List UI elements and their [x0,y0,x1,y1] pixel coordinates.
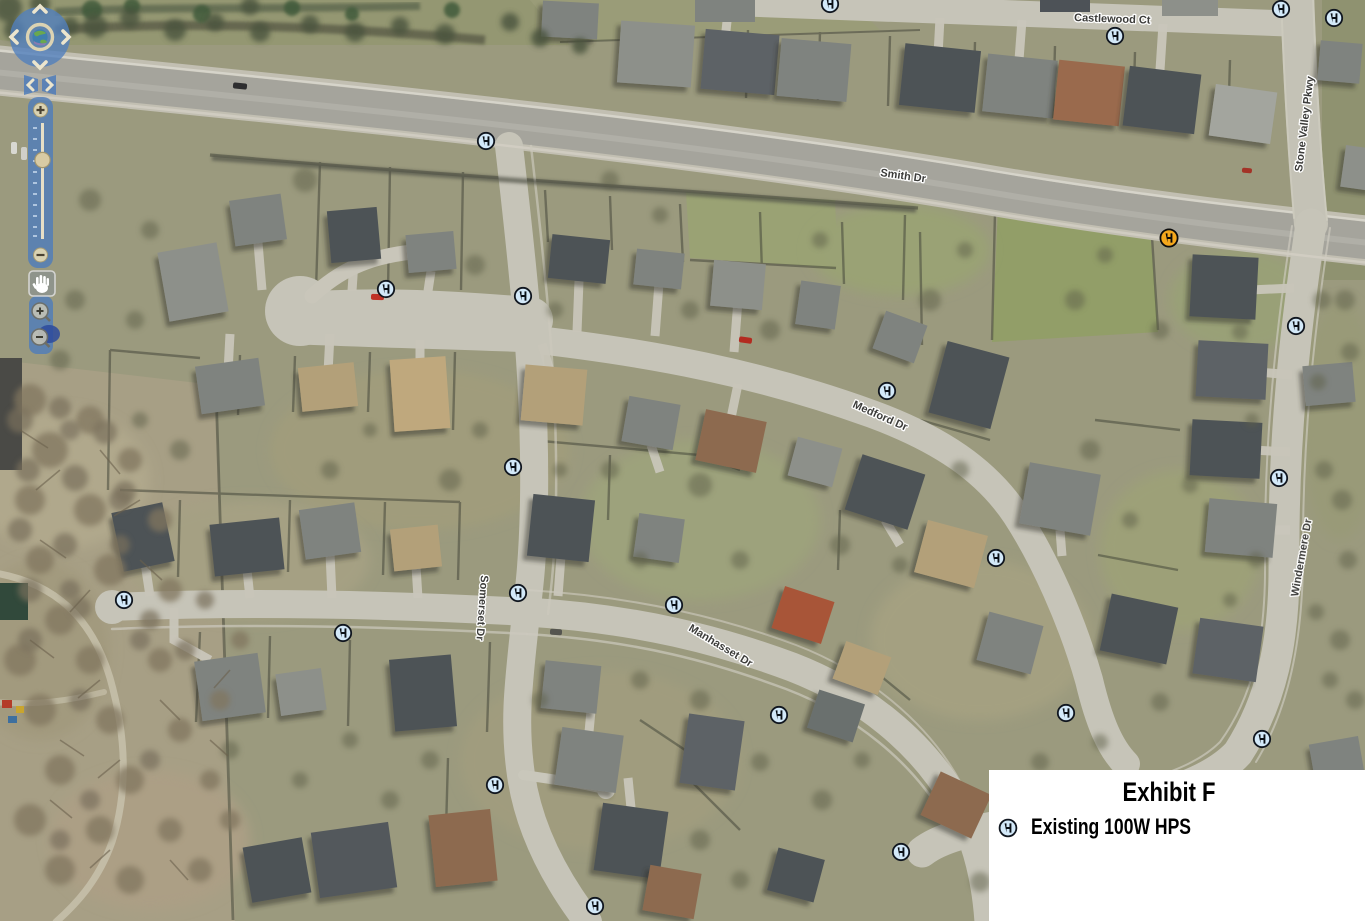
svg-text:Exhibit F: Exhibit F [1123,777,1216,807]
svg-text:Existing 100W HPS: Existing 100W HPS [1031,814,1191,839]
